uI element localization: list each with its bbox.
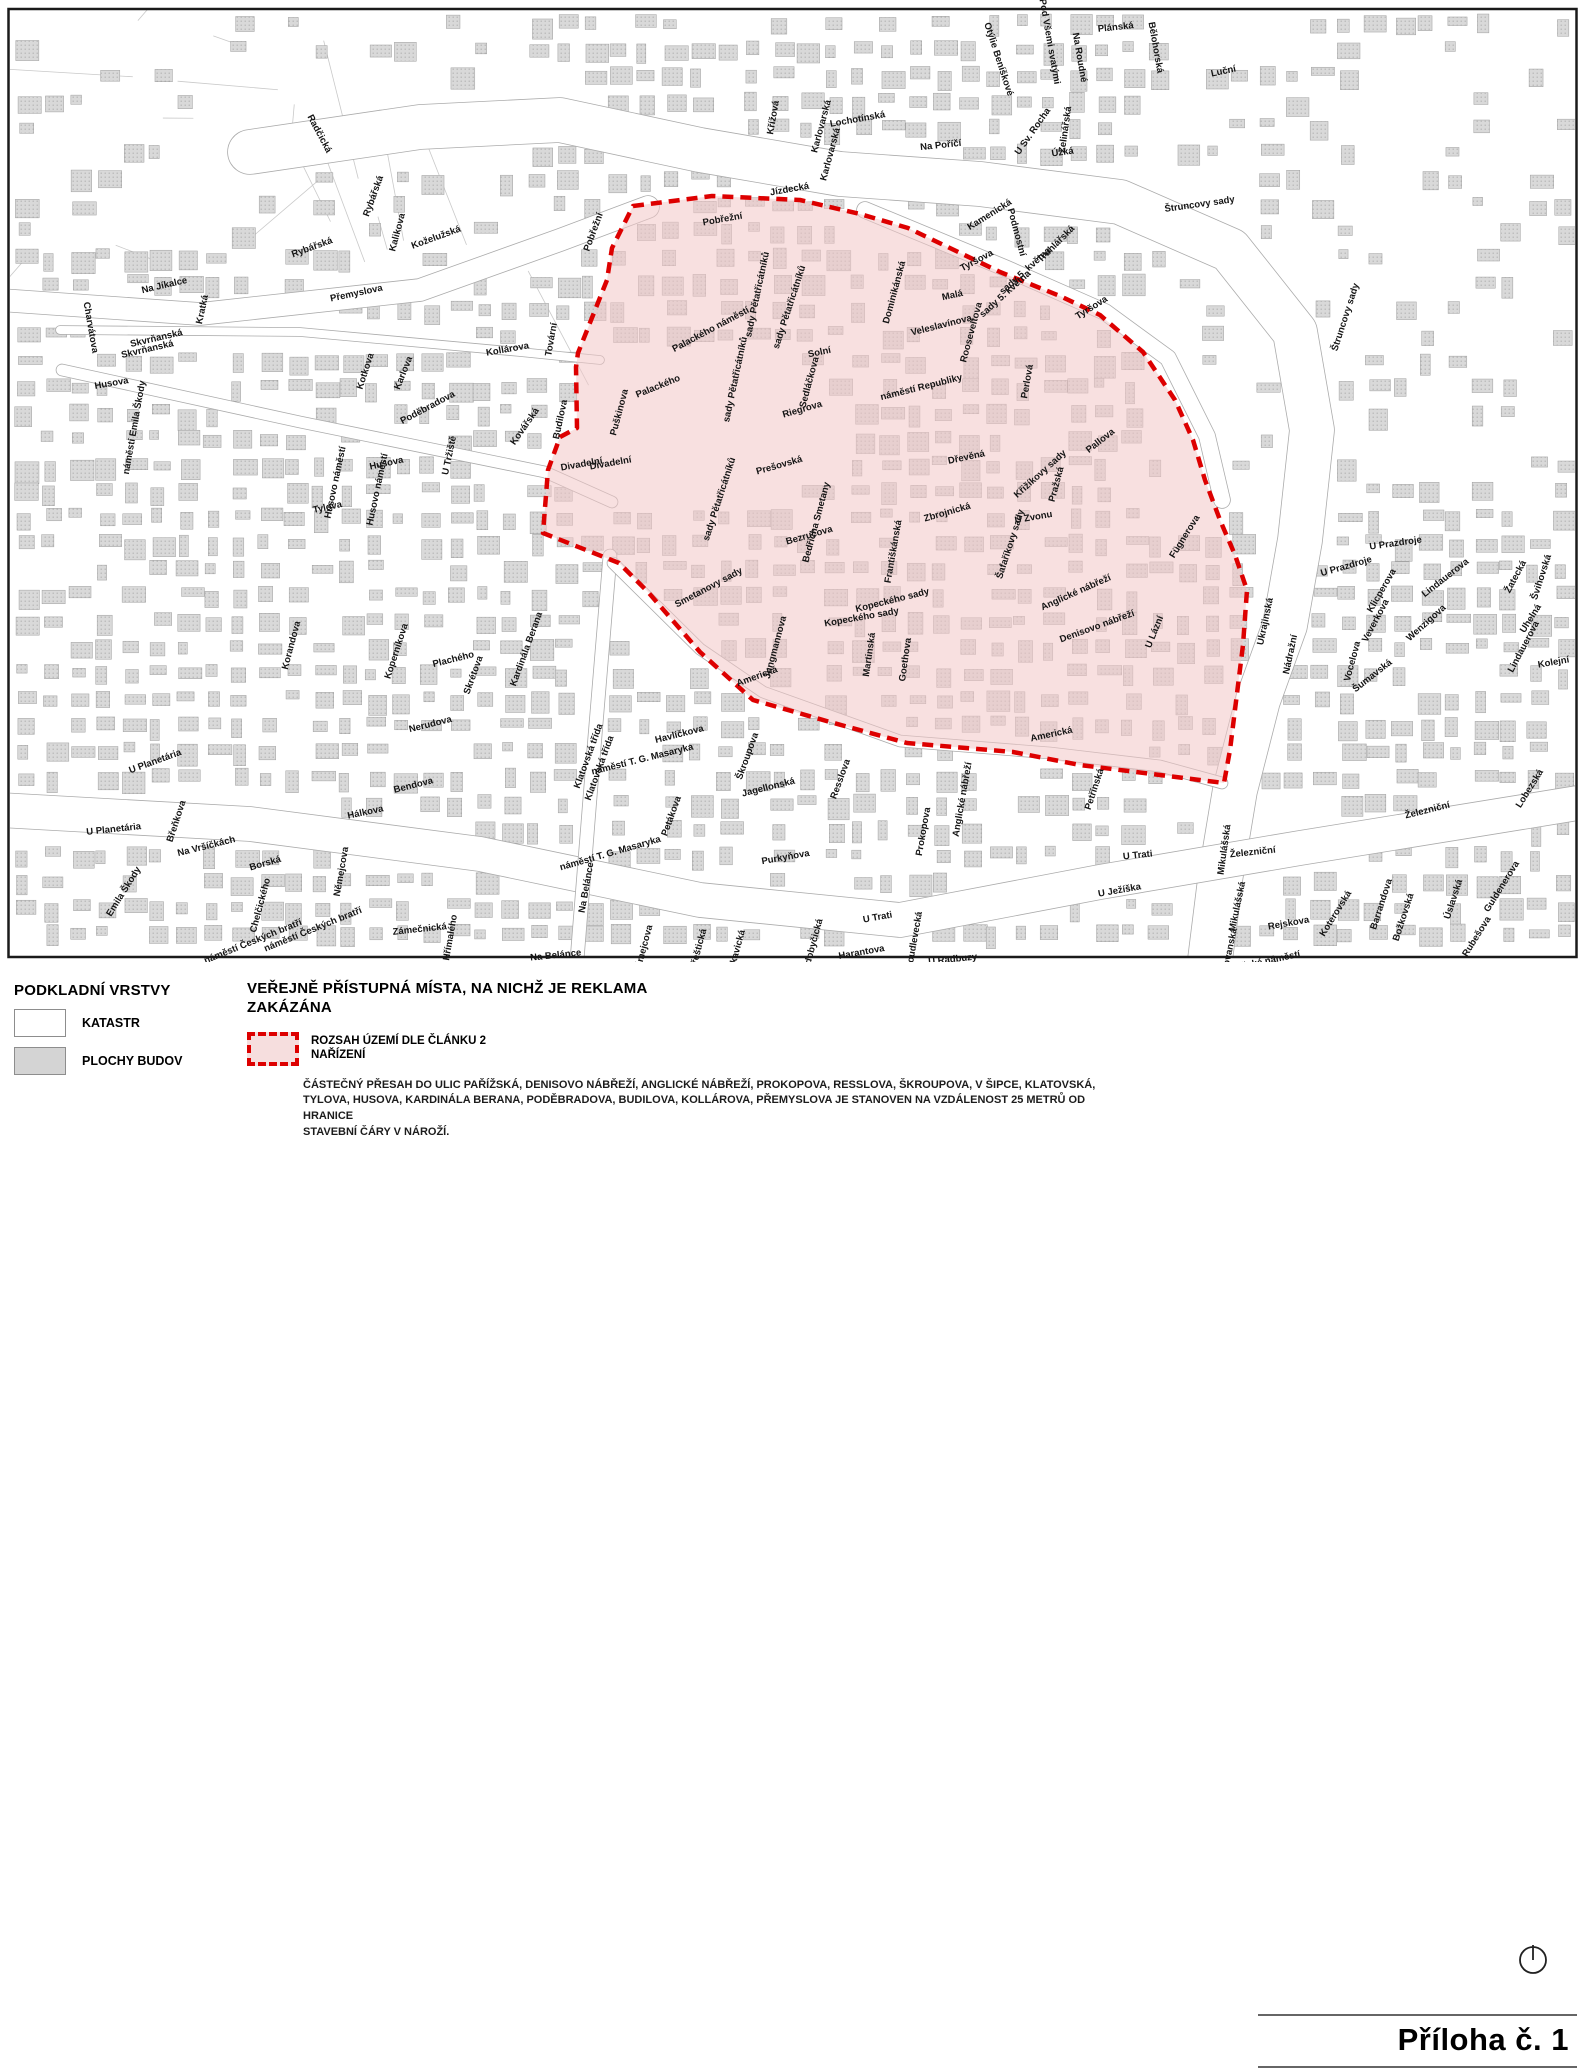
city-block [610,696,632,712]
city-block [209,718,221,729]
city-block [235,768,248,785]
city-block [45,462,56,482]
city-block [96,459,116,480]
city-block [96,691,110,707]
city-block [179,251,197,270]
city-block [151,488,164,506]
city-block [1125,70,1145,88]
city-block [231,695,246,706]
city-block [394,42,416,61]
city-block [450,566,466,581]
city-block [260,434,277,445]
map-canvas: RadčickáRybářskáRybářskáKalikovaKoželužs… [0,0,1585,962]
city-block [96,851,105,864]
city-block [1448,302,1459,314]
city-block [1418,773,1436,788]
street-label: Na Poříčí [920,138,962,153]
city-block [474,222,498,233]
city-block [854,42,872,53]
city-block [258,644,282,654]
city-block [1446,643,1469,653]
city-block [1445,512,1460,531]
city-block [1555,483,1566,497]
street-label: Koželužská [410,223,463,251]
city-block [1500,772,1515,783]
city-block [1339,381,1353,400]
city-block [1557,20,1568,37]
city-block [368,536,381,554]
city-block [1207,306,1225,316]
city-block [851,68,862,84]
city-block [1531,457,1547,467]
city-block [16,41,39,61]
city-block [1527,722,1546,738]
field-line [178,81,278,90]
city-block [206,618,221,632]
city-block [423,253,447,265]
city-block [1338,513,1362,521]
city-block [313,876,325,891]
city-block [1558,903,1574,922]
city-block [1286,98,1309,117]
city-block [1446,847,1458,868]
city-block [17,382,34,396]
city-block [1283,877,1300,895]
city-block [1475,770,1498,781]
city-block [1475,721,1499,739]
city-block [560,825,573,843]
city-block [1340,694,1353,714]
city-block [284,512,304,525]
city-block [1502,536,1524,553]
city-block [1073,824,1092,841]
city-block [42,535,54,547]
city-block [1310,121,1328,140]
city-block [261,563,279,578]
city-block [1499,561,1512,570]
city-block [1099,97,1116,113]
city-block [16,900,36,914]
city-block [1392,875,1406,892]
city-block [394,196,405,212]
city-block [935,826,949,846]
city-block [910,875,932,897]
city-block [1124,253,1141,270]
city-block [176,927,196,943]
city-block [369,590,382,600]
city-block [1555,200,1571,216]
city-block [990,847,1012,858]
city-block [826,849,837,857]
city-block [369,560,384,569]
city-block [178,614,200,631]
city-block [1532,691,1549,705]
city-block [316,383,340,398]
city-block [398,874,414,883]
city-block [176,561,198,576]
city-block [798,796,816,805]
city-block [610,44,626,57]
city-block [339,773,348,792]
legend-item-zone: ROZSAH ÚZEMÍ DLE ČLÁNKU 2 NAŘÍZENÍ [247,1032,1107,1066]
city-block [1288,744,1302,760]
city-block [101,514,116,526]
city-block [47,772,57,792]
city-block [1045,846,1055,856]
legend-section: PODKLADNÍ VRSTVY KATASTR PLOCHY BUDOV VE… [0,962,1585,1120]
city-block [1557,119,1578,129]
city-block [637,70,654,81]
city-block [478,407,489,426]
city-block [665,46,688,61]
city-block [797,44,820,63]
city-block [1287,71,1298,81]
city-block [367,614,383,625]
city-block [1313,639,1336,653]
city-block [906,774,919,785]
city-block [1423,510,1444,521]
city-block [1095,45,1107,56]
city-block [555,670,566,686]
city-block [960,98,979,109]
city-block [234,590,247,608]
city-block [1559,670,1568,689]
street-label: Kolejní [1537,654,1570,670]
city-block [1343,744,1367,761]
city-block [312,771,336,781]
city-block [693,98,713,112]
city-block [365,670,375,680]
city-block [721,799,738,818]
city-block [691,796,713,818]
city-block [1367,746,1389,758]
city-block [15,407,32,427]
city-block [1365,355,1383,364]
street-label: Pod Všemi svatými [1037,0,1063,85]
city-block [1316,301,1330,317]
city-block [475,930,486,939]
city-block [1338,722,1357,741]
city-block [716,772,730,790]
city-block [422,513,441,527]
street-label: Němejcova [332,845,352,897]
city-block [16,617,39,635]
city-block [179,353,197,362]
city-block [342,486,352,507]
city-block [664,926,687,944]
city-block [451,669,461,677]
city-block [233,459,257,475]
city-block [290,357,308,375]
city-block [45,96,63,112]
city-block [286,435,305,449]
city-block [1420,638,1432,649]
city-block [1474,742,1486,755]
city-block [1503,614,1516,632]
city-block [473,641,489,650]
city-block [451,462,471,479]
city-block [637,849,660,864]
city-block [208,745,232,755]
city-block [1555,565,1565,579]
city-block [773,825,785,840]
city-block [1260,118,1274,126]
city-block [1476,509,1493,517]
city-block [614,795,628,806]
map-annex-page: { "legend": { "section_title": "PODKLADN… [0,0,1585,1120]
city-block [312,565,333,573]
city-block [1419,535,1443,551]
city-block [446,15,460,28]
city-block [149,850,160,862]
city-block [555,743,576,763]
city-block [1449,176,1462,189]
city-block [1261,435,1272,448]
city-block [233,538,244,556]
city-block [1472,482,1493,500]
city-block [1474,614,1497,634]
city-block [45,847,61,857]
city-block [367,717,386,726]
city-block [204,873,222,887]
city-block [365,384,376,403]
city-block [695,692,711,704]
city-block [154,462,170,470]
city-block [19,223,30,236]
city-block [1504,380,1517,397]
city-block [1337,460,1356,481]
city-block [178,642,187,654]
city-block [933,93,950,110]
city-block [150,560,167,574]
city-block [559,146,576,163]
city-block [452,486,470,503]
city-block [855,878,872,890]
city-block [1500,899,1523,920]
city-block [422,383,434,399]
city-block [937,772,957,792]
city-block [665,771,675,786]
street-label: Korandova [280,619,304,670]
city-block [556,902,572,911]
city-block [19,536,34,549]
city-block [451,539,463,558]
city-block [1096,826,1108,836]
city-block [692,44,715,59]
city-block [1203,355,1216,364]
city-block [1312,614,1325,628]
city-block [451,513,473,523]
street-label: Na Belánce [530,947,582,962]
city-block [1312,200,1333,218]
city-block [150,666,166,675]
city-block [1445,718,1457,737]
city-block [637,44,646,63]
street-label: Plachého [432,649,476,670]
zone-label-line1: ROZSAH ÚZEMÍ DLE ČLÁNKU 2 [311,1035,486,1047]
city-block [316,46,327,59]
city-block [585,71,607,84]
city-block [1556,875,1570,891]
legend-zone-block: VEŘEJNĚ PŘÍSTUPNÁ MÍSTA, NA NICHŽ JE REK… [247,980,1107,1141]
city-block [1530,175,1553,188]
city-block [1530,540,1550,549]
city-block [1017,97,1031,107]
city-block [613,669,633,688]
city-block [422,175,444,194]
zone-label-line2: NAŘÍZENÍ [311,1049,365,1061]
city-block [1474,120,1490,133]
city-block [770,873,784,886]
city-block [313,721,327,732]
city-block [474,744,492,759]
city-block [774,67,794,78]
city-block [286,874,302,891]
city-block [369,639,389,660]
city-block [1558,461,1576,472]
city-block [1097,925,1119,942]
city-block [424,692,434,702]
city-block [1229,513,1242,535]
city-block [557,171,578,190]
city-block [1311,665,1328,678]
city-block [233,561,244,577]
city-block [964,851,981,867]
city-block [852,822,861,843]
city-block [1123,42,1134,52]
city-block [316,692,334,708]
city-block [314,458,323,476]
city-block [776,43,795,57]
city-block [205,925,222,940]
city-block [1553,511,1577,530]
city-block [692,851,703,870]
city-block [801,770,815,790]
note-line3: STAVEBNÍ ČÁRY V NÁROŽÍ. [303,1125,1107,1141]
city-block [1369,511,1379,533]
street-label: U Radbuzy [928,951,979,962]
street-label: Nerudova [408,714,454,735]
city-block [559,693,574,714]
city-block [370,899,392,908]
city-block [1202,326,1223,340]
city-block [289,379,312,390]
city-block [961,42,975,61]
city-block [1098,276,1115,296]
city-block [179,535,188,556]
city-block [45,904,58,923]
city-block [501,331,516,344]
city-block [640,720,649,734]
city-block [20,123,34,133]
city-block [73,851,94,868]
city-block [181,460,200,480]
city-block [71,170,92,192]
city-block [1447,614,1471,622]
city-block [128,274,149,282]
city-block [476,873,499,894]
city-block [1124,799,1146,812]
city-block [1530,852,1539,872]
city-block [1123,274,1146,296]
city-block [1393,484,1414,497]
city-block [557,306,569,320]
city-block [1071,14,1092,34]
city-block [1527,898,1546,909]
map-title-line2: ZAKÁZÁNA [247,999,1107,1018]
city-block [1208,146,1218,155]
city-block [288,539,305,548]
city-block [501,719,524,727]
city-block [559,15,578,29]
city-block [448,588,464,602]
city-block [558,44,570,62]
city-block [447,798,461,817]
city-block [1180,280,1200,288]
city-block [1369,409,1387,430]
city-block [1476,277,1495,288]
city-block [721,722,743,738]
city-block [15,199,39,218]
city-block [1502,512,1512,527]
city-block [122,587,145,603]
city-block [1311,67,1334,75]
city-block [1504,928,1514,941]
city-block [421,797,440,812]
city-block [532,925,548,937]
city-block [532,19,552,39]
city-block [124,742,135,752]
city-block [1096,228,1110,242]
city-block [314,200,335,214]
city-block [71,642,92,658]
city-block [316,665,337,674]
city-block [152,508,162,522]
city-block [1396,18,1415,35]
city-block [369,223,380,236]
city-block [556,565,578,584]
city-block [72,747,95,758]
city-block [771,799,793,810]
city-block [1555,617,1569,628]
city-block [962,66,979,81]
city-block [1342,617,1355,630]
city-block [1045,795,1068,815]
field-line [138,0,156,21]
city-block [1124,96,1140,114]
city-block [1340,71,1358,90]
city-block [530,772,545,792]
city-block [447,405,459,419]
city-block [1420,928,1443,947]
city-block [44,254,53,272]
city-block [206,904,217,920]
city-block [746,70,757,83]
city-block [370,45,391,57]
city-block [478,795,491,809]
city-block [585,17,596,30]
city-block [476,43,487,54]
legend-base-layers: PODKLADNÍ VRSTVY KATASTR PLOCHY BUDOV [14,982,182,1075]
city-block [422,354,443,372]
city-block [286,771,299,793]
city-block [208,538,217,556]
city-block [153,538,175,557]
city-block [881,770,896,792]
city-block [43,278,58,290]
city-block [478,587,487,600]
city-block [17,875,28,894]
